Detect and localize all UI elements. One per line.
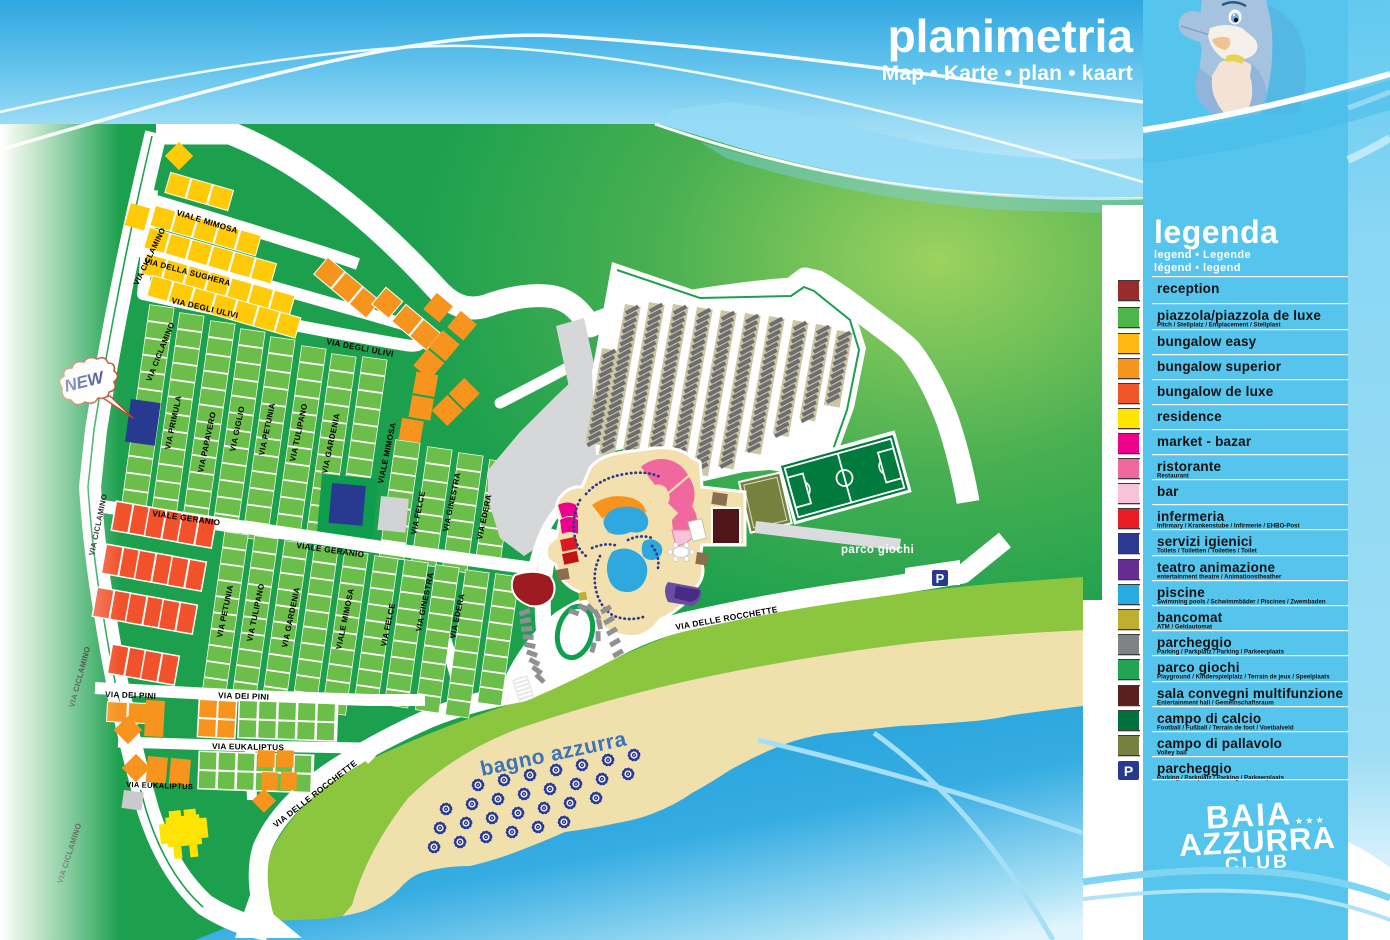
svg-text:reception: reception bbox=[1157, 281, 1220, 296]
svg-text:bar: bar bbox=[1157, 484, 1179, 499]
svg-text:Parking / Parkplatz / Parking: Parking / Parkplatz / Parking / Parkeerp… bbox=[1157, 649, 1285, 656]
svg-text:Swimming pools / Schwimmbäder: Swimming pools / Schwimmbäder / Piscines… bbox=[1157, 599, 1326, 606]
svg-text:Parking / Parkplatz / Parking: Parking / Parkplatz / Parking / Parkeerp… bbox=[1157, 775, 1285, 782]
svg-text:entertainment theatre / Animat: entertainment theatre / Animationstheath… bbox=[1157, 574, 1282, 581]
svg-text:P: P bbox=[936, 571, 945, 586]
svg-text:planimetria: planimetria bbox=[888, 10, 1134, 62]
svg-text:Volley ball: Volley ball bbox=[1157, 750, 1187, 757]
svg-text:Playground / Kinderspielplatz: Playground / Kinderspielplatz / Terrain … bbox=[1157, 674, 1330, 681]
svg-text:Pitch / Stellplatz / Emplaceme: Pitch / Stellplatz / Emplacement / Stell… bbox=[1157, 322, 1281, 329]
svg-text:legend • Legende: legend • Legende bbox=[1154, 249, 1251, 261]
svg-text:VIA EUKALIPTUS: VIA EUKALIPTUS bbox=[212, 742, 285, 752]
svg-text:residence: residence bbox=[1157, 409, 1222, 424]
svg-text:Restaurant: Restaurant bbox=[1157, 473, 1189, 480]
svg-text:Map • Karte • plan • kaart: Map • Karte • plan • kaart bbox=[882, 62, 1133, 85]
svg-text:Entertainment hall / Gemeinsch: Entertainment hall / Gemeinschaftsraum bbox=[1157, 700, 1274, 707]
svg-text:légend • legend: légend • legend bbox=[1154, 262, 1241, 274]
svg-text:parco giochi: parco giochi bbox=[841, 544, 914, 556]
svg-text:Infirmary / Krankenstube / Inf: Infirmary / Krankenstube / Infirmerie / … bbox=[1157, 523, 1300, 530]
svg-text:ATM / Geldautomat: ATM / Geldautomat bbox=[1157, 624, 1212, 631]
svg-text:P: P bbox=[1124, 763, 1133, 779]
svg-text:bungalow superior: bungalow superior bbox=[1157, 359, 1282, 374]
svg-text:market - bazar: market - bazar bbox=[1157, 434, 1252, 449]
svg-text:legenda: legenda bbox=[1154, 214, 1278, 250]
svg-text:bungalow easy: bungalow easy bbox=[1157, 334, 1257, 349]
svg-text:Toilets / Toiletten / Toilette: Toilets / Toiletten / Toilettes / Toilet bbox=[1157, 548, 1257, 555]
svg-text:VIA DEI PINI: VIA DEI PINI bbox=[218, 691, 269, 702]
svg-text:bungalow de luxe: bungalow de luxe bbox=[1157, 384, 1274, 399]
svg-text:Football / Fußball / Terrain d: Football / Fußball / Terrain de foot / V… bbox=[1157, 725, 1294, 732]
